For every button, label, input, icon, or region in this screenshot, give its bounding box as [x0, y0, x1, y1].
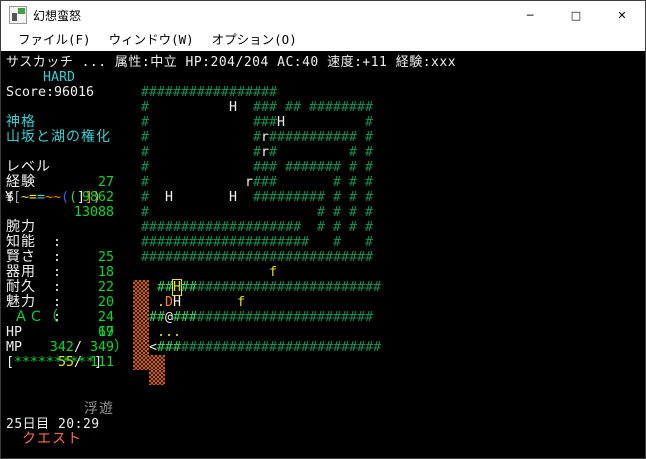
- stat-row-wisdom: 賢さ : 22: [1, 235, 645, 250]
- map-glyph: #: [141, 145, 149, 160]
- hp-max: 349: [90, 340, 114, 355]
- map-glyph: #: [365, 235, 373, 250]
- float-status: 浮遊: [84, 402, 645, 417]
- map-glyph: #: [365, 115, 373, 130]
- equipment-slot-glyph: =: [29, 190, 37, 205]
- player-glyph: @: [165, 310, 173, 325]
- gauge-open-bracket: [: [6, 355, 14, 370]
- map-glyph: #: [141, 160, 149, 175]
- map-glyph: #######: [285, 160, 341, 175]
- map-glyph: #: [349, 205, 357, 220]
- map-glyph: #: [141, 190, 149, 205]
- map-glyph: ###: [253, 115, 277, 130]
- map-glyph: ##: [285, 100, 301, 115]
- mp-row: MP 55/ 111: [1, 325, 645, 340]
- map-glyph: #########: [253, 190, 325, 205]
- minimize-button[interactable]: ─: [507, 1, 553, 29]
- equipment-slot-glyph: (: [61, 190, 69, 205]
- title-bar[interactable]: 幻想蛮怒 ─ □ ✕: [1, 1, 645, 29]
- map-glyph: #: [333, 175, 341, 190]
- map-glyph: #: [333, 235, 341, 250]
- mountain-wall-tile: [149, 370, 165, 385]
- menu-window[interactable]: ウィンドウ(W): [100, 29, 203, 51]
- map-glyph: ##: [181, 280, 197, 295]
- map-glyph: #: [141, 100, 149, 115]
- map-glyph: ###: [157, 340, 181, 355]
- map-glyph: #: [333, 190, 341, 205]
- map-glyph: #: [349, 175, 357, 190]
- map-glyph: #: [141, 205, 149, 220]
- bottom-status-bar: 加速(+10) 学習 地上: [1, 445, 645, 459]
- map-glyph: #: [365, 205, 373, 220]
- map-glyph: #: [333, 220, 341, 235]
- equipment-slot-glyph: ~: [53, 190, 61, 205]
- map-glyph: #: [365, 190, 373, 205]
- map-glyph: #: [365, 175, 373, 190]
- gold-row: $ 13088: [1, 175, 645, 190]
- map-glyph: r: [261, 145, 269, 160]
- map-glyph: ###########: [269, 130, 357, 145]
- map-glyph: ###: [253, 175, 277, 190]
- map-glyph: #: [269, 145, 277, 160]
- map-glyph: ...: [157, 325, 181, 340]
- targeted-monster-glyph: H: [173, 280, 181, 295]
- level-row: レベル 27: [1, 145, 645, 160]
- gauge-close-bracket: ]: [94, 355, 102, 370]
- map-glyph: #: [141, 175, 149, 190]
- close-button[interactable]: ✕: [599, 1, 645, 29]
- menu-bar: ファイル(F) ウィンドウ(W) オプション(O): [1, 29, 645, 51]
- app-window: 幻想蛮怒 ─ □ ✕ ファイル(F) ウィンドウ(W) オプション(O) サスカ…: [0, 0, 646, 459]
- map-glyph: ###: [173, 310, 197, 325]
- equipment-slot-glyph: =: [37, 190, 45, 205]
- menu-options[interactable]: オプション(O): [203, 29, 306, 51]
- ac-close-paren: ）: [114, 340, 129, 355]
- map-glyph: #####################: [141, 235, 309, 250]
- map-glyph: #: [349, 190, 357, 205]
- map-glyph: H: [229, 100, 237, 115]
- equipment-slot-glyph: ]: [85, 190, 93, 205]
- equipment-slot-glyph: (: [69, 190, 77, 205]
- deity-title: 神格: [6, 115, 645, 130]
- map-glyph: #: [349, 145, 357, 160]
- map-glyph: r: [261, 130, 269, 145]
- map-glyph: #############################: [141, 250, 373, 265]
- equipment-slot-glyph: ~: [45, 190, 53, 205]
- map-glyph: #: [365, 220, 373, 235]
- map-glyph: ########: [309, 100, 373, 115]
- score-line: Score:96016: [6, 85, 645, 100]
- hp-separator: /: [74, 340, 90, 355]
- window-title: 幻想蛮怒: [33, 7, 81, 24]
- character-status-line: サスカッチ ... 属性:中立 HP:204/204 AC:40 速度:+11 …: [6, 55, 645, 70]
- menu-file[interactable]: ファイル(F): [9, 29, 100, 51]
- map-glyph: #################: [141, 85, 277, 100]
- map-glyph: #: [365, 130, 373, 145]
- game-date-time: 25日目 20:29: [6, 417, 645, 432]
- map-glyph: #: [333, 205, 341, 220]
- app-icon: [9, 6, 27, 24]
- maximize-button[interactable]: □: [553, 1, 599, 29]
- mountain-wall-tile: [133, 295, 149, 310]
- map-glyph: #: [349, 220, 357, 235]
- mountain-wall-tile: [133, 355, 165, 370]
- map-glyph: #: [253, 130, 261, 145]
- map-glyph: #########################: [181, 340, 381, 355]
- equipment-slot-glyph: [: [13, 190, 21, 205]
- equipment-slot-glyph: ~: [21, 190, 29, 205]
- map-glyph: <: [149, 340, 157, 355]
- map-glyph: f: [237, 295, 245, 310]
- map-glyph: ######################: [197, 310, 373, 325]
- map-glyph: #: [141, 130, 149, 145]
- game-screen[interactable]: サスカッチ ... 属性:中立 HP:204/204 AC:40 速度:+11 …: [1, 51, 645, 458]
- map-glyph: #: [349, 160, 357, 175]
- window-controls: ─ □ ✕: [507, 1, 645, 29]
- equipment-slot-glyph: ]: [77, 190, 85, 205]
- gauge-stars: **********: [14, 355, 94, 370]
- mountain-wall-tile: [133, 340, 149, 355]
- map-glyph: ###: [253, 160, 277, 175]
- map-glyph: .: [157, 295, 165, 310]
- map-glyph: H: [165, 190, 173, 205]
- health-gauge: [**********]: [6, 355, 645, 370]
- map-glyph: #: [365, 160, 373, 175]
- map-glyph: #: [365, 145, 373, 160]
- map-glyph: H: [229, 190, 237, 205]
- map-glyph: ###: [253, 100, 277, 115]
- map-glyph: D: [165, 295, 173, 310]
- map-glyph: r: [245, 175, 253, 190]
- mountain-wall-tile: [133, 310, 149, 325]
- map-glyph: ####################: [141, 220, 301, 235]
- equipment-slot-glyph: ): [93, 190, 101, 205]
- stat-row-constitution: 耐久 : 24: [1, 265, 645, 280]
- mountain-wall-tile: [133, 325, 149, 340]
- map-glyph: #: [317, 220, 325, 235]
- map-glyph: H: [277, 115, 285, 130]
- map-glyph: f: [269, 265, 277, 280]
- map-glyph: #: [253, 145, 261, 160]
- mountain-wall-tile: [133, 280, 149, 295]
- ac-row: ＡＣ（ 69 ）: [1, 295, 645, 310]
- map-glyph: ##: [157, 280, 173, 295]
- map-glyph: #######################: [197, 280, 381, 295]
- mp-label: MP: [6, 340, 22, 355]
- map-glyph: #: [141, 115, 149, 130]
- map-glyph: #: [317, 205, 325, 220]
- map-glyph: ##: [149, 310, 165, 325]
- map-glyph: H: [173, 295, 181, 310]
- difficulty-label: HARD: [43, 70, 645, 85]
- equipment-slot-glyph: ¥: [5, 190, 13, 205]
